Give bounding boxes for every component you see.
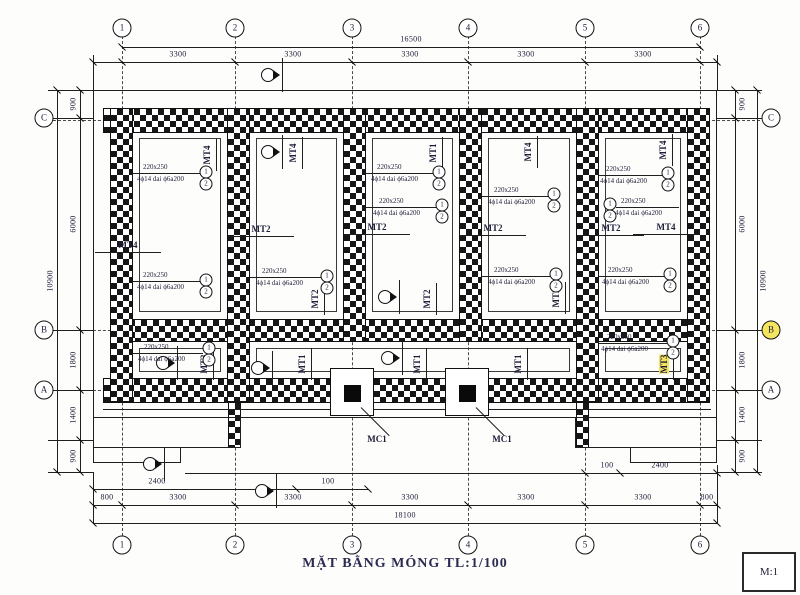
dim-bottom-segment: 3300	[634, 493, 651, 502]
beam-label: MT2	[422, 290, 432, 309]
dim-bottom-overall: 18100	[394, 511, 416, 520]
dim-left-segment: 900	[69, 450, 78, 463]
dim-right-segment: 1800	[738, 351, 747, 368]
drawing-line	[180, 447, 181, 463]
rebar-mark-bubble: 2	[667, 347, 680, 360]
section-marker-line	[276, 474, 277, 508]
section-marker-line	[177, 346, 178, 380]
section-marker-line	[282, 58, 283, 92]
grid-bubble-bottom: 1	[113, 536, 132, 555]
beam-label: MT4	[658, 141, 668, 160]
drawing-line	[716, 447, 717, 463]
beam-label: MT1	[297, 355, 307, 374]
drawing-line	[93, 447, 241, 448]
beam-label-underline	[344, 234, 410, 235]
drawing-line	[122, 47, 700, 48]
beam-label: MT4	[202, 146, 212, 165]
dim-extension-line	[48, 472, 93, 473]
rebar-leader-line	[599, 276, 664, 277]
grid-bubble-left: C	[35, 109, 54, 128]
dim-bottom-sub: 100	[322, 477, 335, 486]
dim-extension-line	[48, 440, 93, 441]
grid-bubble-left: B	[35, 321, 54, 340]
dim-right-segment: 1400	[738, 406, 747, 423]
beam-label-underline	[95, 252, 161, 253]
dim-top-segment: 3300	[634, 50, 651, 59]
rebar-mark-bubble: 2	[436, 211, 449, 224]
section-arrow-icon	[273, 70, 280, 80]
rebar-size-label: 220x250	[608, 266, 633, 274]
rebar-size-label: 220x250	[379, 197, 404, 205]
rebar-bars-label: 4ϕ14 dai ϕ6a200	[373, 209, 420, 217]
dim-bottom-segment: 3300	[169, 493, 186, 502]
grid-bubble-right: B	[762, 321, 781, 340]
dim-right-overall: 10900	[759, 270, 768, 292]
beam-label: MT1	[412, 355, 422, 374]
rebar-bars-label: 4ϕ14 dai ϕ6a200	[371, 175, 418, 183]
rebar-size-label: 220x250	[607, 333, 632, 341]
drawing-line	[93, 55, 94, 90]
rebar-bars-label: 4ϕ14 dai ϕ6a200	[602, 278, 649, 286]
dim-extension-line	[717, 118, 762, 119]
dim-right-segment: 6000	[738, 215, 747, 232]
section-arrow-icon	[390, 292, 397, 302]
drawing-line	[80, 90, 81, 472]
section-arrow-icon	[393, 353, 400, 363]
rebar-bars-label: 4ϕ14 dai ϕ6a200	[488, 198, 535, 206]
grid-bubble-right: C	[762, 109, 781, 128]
dim-top-segment: 3300	[517, 50, 534, 59]
dim-left-segment: 1400	[69, 406, 78, 423]
dim-top-segment: 3300	[284, 50, 301, 59]
beam-label: MT2	[484, 223, 503, 233]
drawing-line	[93, 505, 717, 506]
beam-label-underline	[228, 236, 294, 237]
beam-label-leader	[672, 134, 673, 166]
leader-line	[361, 407, 390, 436]
dim-extension-line	[48, 390, 93, 391]
strip-footing-band	[576, 108, 599, 402]
drawing-line	[93, 90, 94, 448]
dim-extension-line	[717, 330, 762, 331]
rebar-bars-label: 4ϕ14 dai ϕ6a200	[615, 209, 662, 217]
drawing-line	[93, 523, 717, 524]
column-label: MC1	[492, 434, 512, 444]
rebar-leader-line	[599, 343, 667, 344]
rebar-mark-bubble: 2	[662, 179, 675, 192]
dim-bottom-sub: 2400	[651, 461, 668, 470]
dim-bottom-segment: 3300	[401, 493, 418, 502]
dim-bottom-segment: 3300	[284, 493, 301, 502]
drawing-line	[735, 90, 736, 472]
beam-label: MT2	[252, 224, 271, 234]
drawing-line	[93, 462, 181, 463]
strip-footing-band	[459, 108, 482, 342]
rebar-size-label: 220x250	[143, 163, 168, 171]
rebar-mark-bubble: 2	[548, 200, 561, 213]
beam-label-leader	[565, 282, 566, 314]
column-section	[459, 385, 476, 402]
rebar-size-label: 220x250	[377, 163, 402, 171]
rebar-leader-line	[133, 281, 200, 282]
beam-label: MT4	[657, 222, 676, 232]
drawing-line	[240, 417, 241, 448]
drawing-line	[93, 90, 717, 91]
drawing-line	[716, 90, 717, 448]
dim-top-segment: 3300	[401, 50, 418, 59]
rebar-mark-bubble: 2	[200, 178, 213, 191]
rebar-bars-label: 4ϕ14 dai ϕ6a200	[488, 278, 535, 286]
dim-right-segment: 900	[738, 98, 747, 111]
dim-extension-line	[717, 90, 762, 91]
dim-left-overall: 10900	[46, 270, 55, 292]
column-section	[344, 385, 361, 402]
section-marker-line	[399, 280, 400, 314]
rebar-bars-label: 4ϕ14 dai ϕ6a200	[137, 175, 184, 183]
leader-line	[476, 407, 505, 436]
beam-label-leader	[537, 136, 538, 168]
beam-label: MT1	[428, 144, 438, 163]
drawing-line	[93, 472, 94, 523]
drawing-line	[93, 417, 717, 418]
drawing-line	[717, 55, 718, 90]
grid-bubble-top: 3	[343, 19, 362, 38]
grid-bubble-right: A	[762, 381, 781, 400]
beam-label-underline	[633, 234, 699, 235]
scale-label: M:1	[744, 566, 794, 578]
beam-label-leader	[442, 137, 443, 169]
grid-bubble-top: 6	[691, 19, 710, 38]
grid-bubble-top: 5	[576, 19, 595, 38]
dim-top-segment: 3300	[169, 50, 186, 59]
rebar-size-label: 220x250	[494, 186, 519, 194]
section-marker-line	[402, 341, 403, 375]
beam-label-leader	[426, 348, 427, 380]
rebar-size-label: 220x250	[143, 271, 168, 279]
rebar-bars-label: 4ϕ14 dai ϕ6a200	[138, 355, 185, 363]
strip-footing-band	[110, 108, 133, 402]
section-arrow-icon	[267, 486, 274, 496]
dim-right-segment: 900	[738, 450, 747, 463]
beam-label-underline	[578, 235, 644, 236]
strip-footing-band	[343, 108, 366, 342]
rebar-mark-bubble: 2	[203, 354, 216, 367]
drawing-line	[575, 417, 576, 448]
drawing-line	[93, 447, 94, 463]
grid-bubble-bottom: 2	[226, 536, 245, 555]
foundation-plan-canvas: MẶT BẰNG MÓNG TL:1/100 M:1 123456123456C…	[0, 0, 800, 595]
strip-footing-band	[103, 108, 710, 133]
dim-top-overall: 16500	[400, 35, 422, 44]
rebar-leader-line	[616, 207, 679, 208]
drawing-line	[57, 90, 58, 472]
section-arrow-icon	[155, 459, 162, 469]
beam-label: MT1	[513, 355, 523, 374]
rebar-mark-bubble: 2	[604, 210, 617, 223]
rebar-leader-line	[366, 173, 433, 174]
strip-footing-band	[687, 108, 710, 402]
dim-extension-line	[48, 330, 93, 331]
dim-bottom-segment: 800	[101, 493, 114, 502]
drawing-title: MẶT BẰNG MÓNG TL:1/100	[225, 556, 585, 572]
rebar-leader-line	[482, 196, 548, 197]
grid-bubble-bottom: 3	[343, 536, 362, 555]
dim-bottom-segment: 3300	[517, 493, 534, 502]
dim-left-segment: 1800	[69, 351, 78, 368]
drawing-line	[103, 409, 711, 410]
grid-bubble-bottom: 5	[576, 536, 595, 555]
grid-bubble-top: 4	[459, 19, 478, 38]
dim-extension-line	[717, 440, 762, 441]
scale-box: M:1	[742, 552, 796, 592]
dim-extension-line	[717, 390, 762, 391]
strip-footing-band	[103, 378, 710, 403]
beam-label: MT2	[602, 223, 621, 233]
dim-bottom-sub: 2400	[148, 477, 165, 486]
grid-bubble-top: 1	[113, 19, 132, 38]
drawing-line	[185, 473, 717, 474]
drawing-line	[575, 447, 717, 448]
rebar-leader-line	[482, 276, 550, 277]
rebar-bars-label: 4ϕ14 dai ϕ6a200	[256, 279, 303, 287]
dim-extension-line	[48, 118, 93, 119]
beam-label-leader	[436, 283, 437, 315]
rebar-bars-label: 4ϕ14 dai ϕ6a200	[600, 177, 647, 185]
section-marker-line	[282, 135, 283, 169]
drawing-line	[93, 62, 717, 63]
rebar-leader-line	[250, 277, 321, 278]
beam-label: MT4	[119, 240, 138, 250]
grid-bubble-bottom: 4	[459, 536, 478, 555]
section-arrow-icon	[263, 363, 270, 373]
dim-bottom-segment: 800	[701, 493, 714, 502]
rebar-leader-line	[133, 173, 200, 174]
beam-label: MT4	[523, 143, 533, 162]
dim-extension-line	[48, 90, 93, 91]
rebar-size-label: 220x250	[262, 267, 287, 275]
rebar-leader-line	[133, 353, 203, 354]
dim-left-segment: 6000	[69, 215, 78, 232]
rebar-mark-bubble: 2	[664, 280, 677, 293]
beam-label-leader	[311, 348, 312, 380]
beam-label-underline	[460, 235, 526, 236]
rebar-leader-line	[366, 207, 436, 208]
dim-extension-line	[717, 472, 762, 473]
section-marker-line	[272, 351, 273, 385]
rebar-size-label: 220x250	[494, 266, 519, 274]
beam-label: MT2	[310, 290, 320, 309]
rebar-size-label: 220x250	[621, 197, 646, 205]
drawing-line	[630, 462, 717, 463]
dim-left-segment: 900	[69, 98, 78, 111]
grid-bubble-top: 2	[226, 19, 245, 38]
grid-bubble-bottom: 6	[691, 536, 710, 555]
rebar-bars-label: 4ϕ14 dai ϕ6a200	[137, 283, 184, 291]
rebar-bars-label: 4ϕ14 dai ϕ6a200	[601, 345, 648, 353]
beam-label-leader	[302, 137, 303, 169]
grid-bubble-left: A	[35, 381, 54, 400]
rebar-leader-line	[599, 175, 662, 176]
column-label: MC1	[367, 434, 387, 444]
rebar-size-label: 220x250	[606, 165, 631, 173]
rebar-mark-bubble: 2	[321, 282, 334, 295]
dim-bottom-sub: 100	[601, 461, 614, 470]
rebar-mark-bubble: 2	[200, 286, 213, 299]
beam-label-leader	[216, 139, 217, 171]
drawing-line	[630, 447, 631, 463]
rebar-size-label: 220x250	[144, 343, 169, 351]
beam-label-leader	[527, 348, 528, 380]
drawing-line	[93, 489, 368, 490]
section-arrow-icon	[273, 147, 280, 157]
beam-label: MT4	[288, 144, 298, 163]
beam-label: MT2	[368, 222, 387, 232]
strip-footing-band	[227, 108, 250, 402]
rebar-mark-bubble: 2	[433, 178, 446, 191]
rebar-mark-bubble: 2	[550, 280, 563, 293]
